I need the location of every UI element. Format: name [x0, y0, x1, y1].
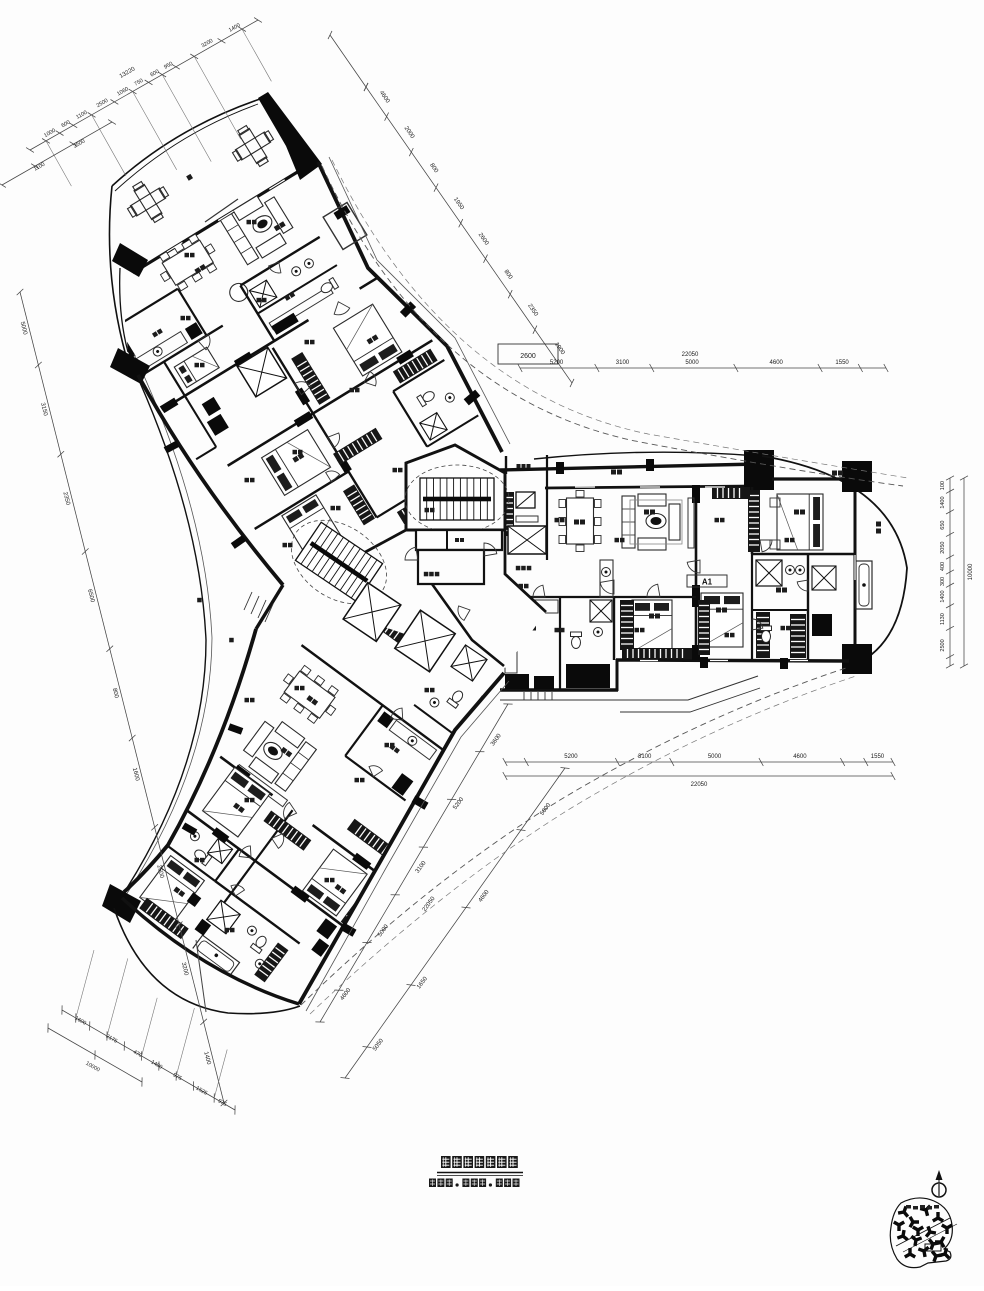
svg-text:1550: 1550	[871, 754, 885, 760]
svg-text:2500: 2500	[940, 639, 946, 651]
svg-text:2600: 2600	[520, 353, 536, 360]
svg-text:22050: 22050	[682, 352, 699, 358]
svg-text:1130: 1130	[940, 613, 946, 625]
svg-text:1400: 1400	[940, 496, 946, 508]
svg-text:1550: 1550	[835, 360, 849, 366]
svg-text:2050: 2050	[940, 542, 946, 554]
svg-text:A1: A1	[702, 578, 713, 587]
svg-text:3100: 3100	[616, 360, 630, 366]
svg-text:5000: 5000	[708, 754, 722, 760]
svg-text:300: 300	[940, 577, 946, 586]
svg-text:10000: 10000	[968, 563, 974, 580]
svg-text:4600: 4600	[793, 754, 807, 760]
svg-text:100: 100	[940, 481, 946, 490]
svg-text:5000: 5000	[685, 360, 699, 366]
svg-text:4600: 4600	[770, 360, 784, 366]
svg-text:5200: 5200	[564, 754, 578, 760]
svg-text:650: 650	[940, 521, 946, 530]
svg-text:400: 400	[940, 562, 946, 571]
svg-text:1400: 1400	[940, 590, 946, 602]
svg-text:22050: 22050	[691, 782, 708, 788]
svg-text:5200: 5200	[550, 360, 564, 366]
